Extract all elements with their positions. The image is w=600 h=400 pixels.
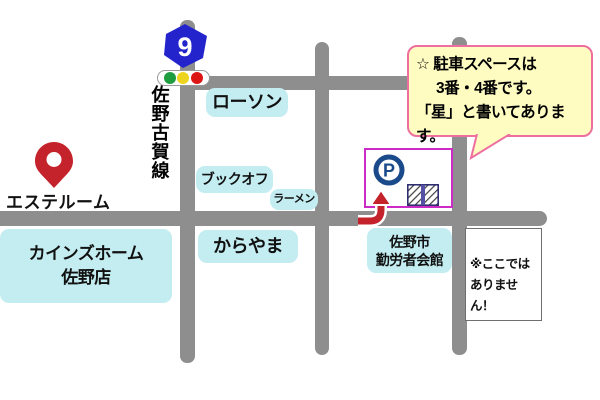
cainz-line2: 佐野店 — [61, 266, 111, 290]
bookoff-text: ブックオフ — [201, 171, 269, 188]
kaikan-line2: 勤労者会館 — [376, 251, 444, 269]
map-label-cainz-home-sano: カインズホーム 佐野店 — [0, 229, 172, 303]
ramen-text: ラーメン — [273, 193, 315, 206]
callout-bubble-tail — [463, 134, 515, 161]
callout-line-2: 3番・4番です。 — [436, 77, 586, 101]
map-label-karayama: からやま — [198, 230, 298, 263]
lawson-text: ローソン — [212, 92, 282, 114]
map-label-bookoff: ブックオフ — [196, 166, 273, 193]
note-line-2: ありません！ — [470, 275, 539, 317]
note-not-here-box: ※ここでは ありません！ — [465, 228, 542, 321]
road-name-sano-koga-line: 佐野古賀線 — [150, 86, 171, 181]
map-label-sano-workers-hall: 佐野市 勤労者会館 — [367, 228, 452, 273]
callout-line-1: ☆ 駐車スペースは — [416, 53, 586, 77]
karayama-text: からやま — [213, 236, 283, 258]
map-label-este-room: エステルーム — [6, 188, 111, 213]
access-map: 9 佐野古賀線 ローソン ブックオフ ラーメン からやま カインズホーム 佐野店… — [0, 0, 600, 400]
road-horizontal-bottom — [0, 211, 547, 226]
route-number: 9 — [177, 32, 192, 62]
location-pin-icon — [35, 142, 73, 188]
note-line-1: ※ここでは — [470, 254, 539, 275]
route-arrow-icon — [357, 188, 395, 228]
map-label-lawson: ローソン — [206, 88, 288, 117]
route-9-shield-icon: 9 — [162, 24, 208, 68]
parking-icon: P — [372, 152, 406, 188]
callout-bubble: ☆ 駐車スペースは 3番・4番です。 「星」と書いてあります。 — [407, 45, 593, 137]
traffic-light-icon — [157, 70, 210, 86]
parking-letter: P — [383, 161, 395, 181]
parking-spaces-hatch-icon — [407, 184, 439, 206]
cainz-line1: カインズホーム — [29, 242, 144, 266]
kaikan-line1: 佐野市 — [389, 233, 430, 251]
map-label-ramen: ラーメン — [270, 189, 318, 210]
